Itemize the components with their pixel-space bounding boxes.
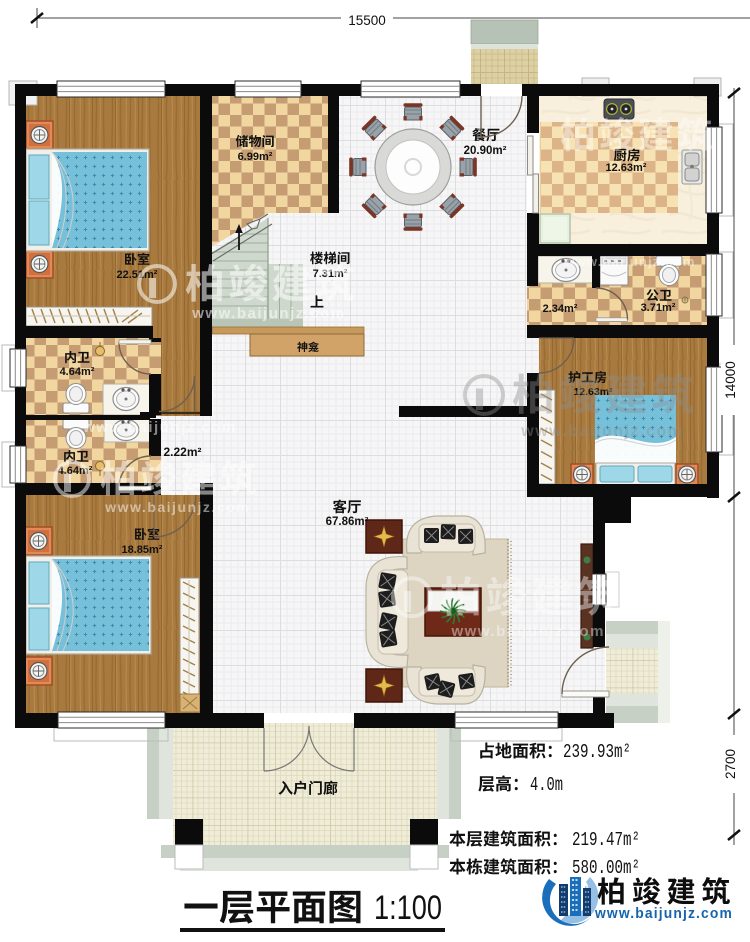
svg-text:4.0m: 4.0m <box>530 774 563 796</box>
svg-text:219.47m²: 219.47m² <box>572 829 640 851</box>
svg-text:1:100: 1:100 <box>374 889 442 927</box>
svg-text:20.90m²: 20.90m² <box>464 145 507 157</box>
svg-text:14000: 14000 <box>723 361 738 399</box>
svg-text:15500: 15500 <box>348 13 386 28</box>
svg-text:67.86m²: 67.86m² <box>326 516 369 528</box>
svg-text:239.93m²: 239.93m² <box>563 741 631 763</box>
svg-text:2.34m²: 2.34m² <box>543 303 578 315</box>
svg-text:www.baijunjz.com: www.baijunjz.com <box>563 254 695 269</box>
svg-text:6.99m²: 6.99m² <box>238 151 273 163</box>
svg-text:12.63m²: 12.63m² <box>606 162 647 174</box>
svg-text:www.baijunjz.com: www.baijunjz.com <box>450 623 604 640</box>
svg-text:www.baijunjz.com: www.baijunjz.com <box>82 419 236 436</box>
svg-text:www.baijunjz.com: www.baijunjz.com <box>520 423 683 440</box>
svg-text:580.00m²: 580.00m² <box>572 857 640 879</box>
svg-text:18.85m²: 18.85m² <box>122 544 163 556</box>
svg-text:2700: 2700 <box>723 749 738 779</box>
svg-text:4.64m²: 4.64m² <box>60 366 95 378</box>
svg-text:3.71m²: 3.71m² <box>641 302 676 314</box>
svg-text:www.baijunjz.com: www.baijunjz.com <box>191 305 345 322</box>
svg-text:www.baijunjz.com: www.baijunjz.com <box>104 499 250 515</box>
svg-text:2.22m²: 2.22m² <box>163 445 201 459</box>
svg-text:www.baijunjz.com: www.baijunjz.com <box>594 906 733 922</box>
